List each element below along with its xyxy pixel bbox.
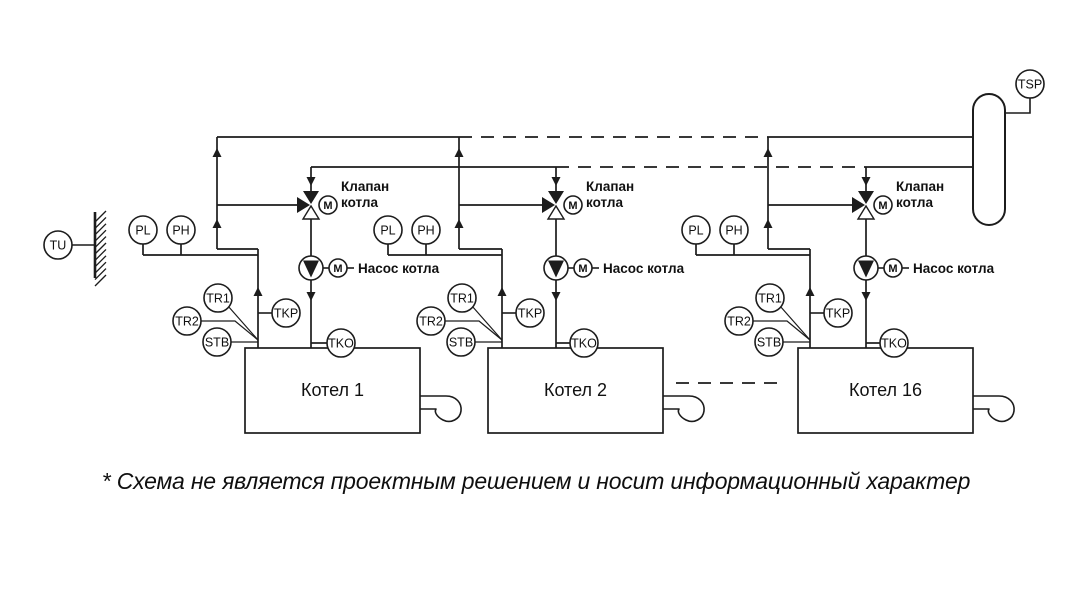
sensor-tkp: TKP [824, 299, 852, 327]
three-way-valve-icon [852, 191, 874, 219]
svg-text:TR2: TR2 [419, 315, 443, 329]
sensor-pl: PL [129, 216, 157, 244]
svg-text:TKO: TKO [881, 337, 907, 351]
flow-arrow-icon [455, 219, 464, 228]
flow-arrow-icon [764, 219, 773, 228]
svg-text:TKO: TKO [571, 337, 597, 351]
valve-motor-icon: M [874, 196, 892, 214]
svg-text:PL: PL [135, 224, 150, 238]
sensor-tr2: TR2 [417, 307, 445, 335]
sensor-ph: PH [412, 216, 440, 244]
valve-motor-icon: M [564, 196, 582, 214]
sensor-tr2: TR2 [173, 307, 201, 335]
svg-text:TKP: TKP [518, 307, 542, 321]
pump-motor-icon: M [329, 259, 347, 277]
sensor-tr1: TR1 [204, 284, 232, 312]
sensor-pl: PL [682, 216, 710, 244]
pump-icon [854, 256, 878, 280]
flow-arrow-icon [307, 292, 316, 301]
boiler-name: Котел 1 [301, 380, 364, 400]
sensor-tr2: TR2 [725, 307, 753, 335]
three-way-valve-icon [297, 191, 319, 219]
boiler-16: Котел 16MКлапанкотлаMНасос котлаPLPHTR1T… [682, 137, 1014, 433]
pump-label: Насос котла [603, 261, 685, 276]
flow-arrow-icon [213, 148, 222, 157]
sensor-tkp: TKP [516, 299, 544, 327]
pump-motor-icon: M [884, 259, 902, 277]
flow-arrow-icon [552, 292, 561, 301]
flow-arrow-icon [455, 148, 464, 157]
sensor-tkp: TKP [272, 299, 300, 327]
svg-text:TKP: TKP [274, 307, 298, 321]
valve-label-line2: котла [341, 195, 378, 210]
valve-label-line1: Клапан [586, 179, 634, 194]
valve-label-line1: Клапан [896, 179, 944, 194]
boiler-name: Котел 16 [849, 380, 922, 400]
svg-text:PH: PH [417, 224, 434, 238]
sensor-tko: TKO [327, 329, 355, 357]
svg-text:TU: TU [50, 239, 67, 253]
boiler-1: Котел 1MКлапанкотлаMНасос котлаPLPHTR1TR… [129, 137, 461, 433]
svg-text:M: M [888, 263, 897, 275]
sensor-tko: TKO [880, 329, 908, 357]
svg-text:STB: STB [205, 336, 229, 350]
svg-text:M: M [878, 200, 887, 212]
pump-icon [544, 256, 568, 280]
svg-text:TR1: TR1 [206, 292, 230, 306]
boiler-cascade-schematic: Котел 1MКлапанкотлаMНасос котлаPLPHTR1TR… [0, 0, 1072, 599]
wall-hatch-icon [95, 211, 106, 286]
flow-arrow-icon [307, 177, 316, 186]
svg-text:TSP: TSP [1018, 78, 1042, 92]
svg-text:PH: PH [725, 224, 742, 238]
burner-icon [663, 396, 704, 421]
schematic-canvas: Котел 1MКлапанкотлаMНасос котлаPLPHTR1TR… [0, 0, 1072, 599]
flow-arrow-icon [213, 219, 222, 228]
pump-icon [299, 256, 323, 280]
sensor-stb: STB [203, 328, 231, 356]
flow-arrow-icon [862, 177, 871, 186]
svg-text:PH: PH [172, 224, 189, 238]
sensor-tr1: TR1 [756, 284, 784, 312]
svg-text:TR2: TR2 [175, 315, 199, 329]
flow-arrow-icon [552, 177, 561, 186]
svg-text:M: M [323, 200, 332, 212]
burner-icon [420, 396, 461, 421]
svg-text:STB: STB [449, 336, 473, 350]
three-way-valve-icon [542, 191, 564, 219]
sensor-ph: PH [167, 216, 195, 244]
pump-label: Насос котла [358, 261, 440, 276]
sensor-tsp: TSP [1016, 70, 1044, 98]
svg-text:M: M [333, 263, 342, 275]
sensor-ph: PH [720, 216, 748, 244]
svg-text:TR1: TR1 [450, 292, 474, 306]
valve-motor-icon: M [319, 196, 337, 214]
pump-motor-icon: M [574, 259, 592, 277]
burner-icon [973, 396, 1014, 421]
svg-text:TR1: TR1 [758, 292, 782, 306]
sensor-stb: STB [447, 328, 475, 356]
sensor-pl: PL [374, 216, 402, 244]
hydraulic-separator: TSP [973, 70, 1044, 225]
flow-arrow-icon [254, 287, 263, 296]
flow-arrow-icon [764, 148, 773, 157]
svg-text:PL: PL [380, 224, 395, 238]
flow-arrow-icon [862, 292, 871, 301]
svg-text:TR2: TR2 [727, 315, 751, 329]
valve-label-line2: котла [896, 195, 933, 210]
pipe-mains [217, 137, 973, 167]
svg-text:PL: PL [688, 224, 703, 238]
svg-text:TKO: TKO [328, 337, 354, 351]
sensor-tu: TU [44, 231, 72, 259]
flow-arrow-icon [806, 287, 815, 296]
svg-text:M: M [568, 200, 577, 212]
valve-label-line1: Клапан [341, 179, 389, 194]
sensor-stb: STB [755, 328, 783, 356]
valve-label-line2: котла [586, 195, 623, 210]
disclaimer-note: * Схема не является проектным решением и… [0, 468, 1072, 495]
sensor-tr1: TR1 [448, 284, 476, 312]
svg-text:STB: STB [757, 336, 781, 350]
svg-text:TKP: TKP [826, 307, 850, 321]
flow-arrow-icon [498, 287, 507, 296]
boiler-2: Котел 2MКлапанкотлаMНасос котлаPLPHTR1TR… [374, 137, 704, 433]
svg-text:M: M [578, 263, 587, 275]
pump-label: Насос котла [913, 261, 995, 276]
outdoor-sensor-assembly: TU [44, 211, 106, 286]
sensor-tko: TKO [570, 329, 598, 357]
boiler-name: Котел 2 [544, 380, 607, 400]
